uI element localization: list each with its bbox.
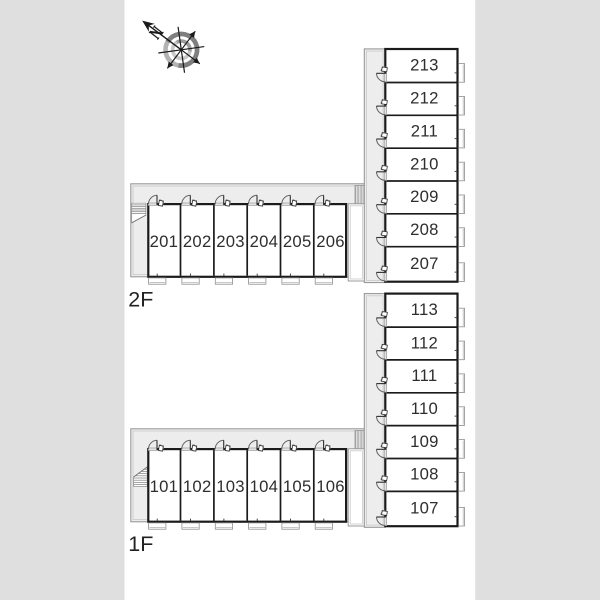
svg-text:1F: 1F: [128, 532, 153, 556]
svg-text:109: 109: [410, 432, 439, 451]
svg-text:106: 106: [316, 477, 345, 496]
svg-text:208: 208: [410, 220, 439, 239]
svg-text:107: 107: [410, 499, 439, 518]
svg-text:108: 108: [410, 465, 439, 484]
svg-text:113: 113: [411, 300, 438, 319]
svg-text:103: 103: [216, 477, 245, 496]
svg-text:213: 213: [410, 56, 439, 75]
svg-text:203: 203: [216, 232, 245, 251]
svg-text:204: 204: [250, 232, 279, 251]
svg-text:210: 210: [410, 154, 439, 173]
svg-text:205: 205: [283, 232, 312, 251]
svg-text:2F: 2F: [128, 288, 153, 312]
svg-text:112: 112: [411, 333, 438, 352]
svg-text:111: 111: [411, 366, 437, 385]
svg-text:104: 104: [250, 477, 279, 496]
svg-text:110: 110: [411, 399, 438, 418]
svg-text:207: 207: [410, 254, 439, 273]
svg-text:102: 102: [183, 477, 212, 496]
svg-text:202: 202: [183, 232, 212, 251]
svg-text:206: 206: [316, 232, 345, 251]
svg-text:209: 209: [410, 187, 439, 206]
svg-text:212: 212: [410, 89, 439, 108]
svg-text:211: 211: [411, 122, 438, 141]
svg-text:101: 101: [150, 477, 179, 496]
svg-text:201: 201: [150, 232, 179, 251]
svg-text:105: 105: [283, 477, 312, 496]
